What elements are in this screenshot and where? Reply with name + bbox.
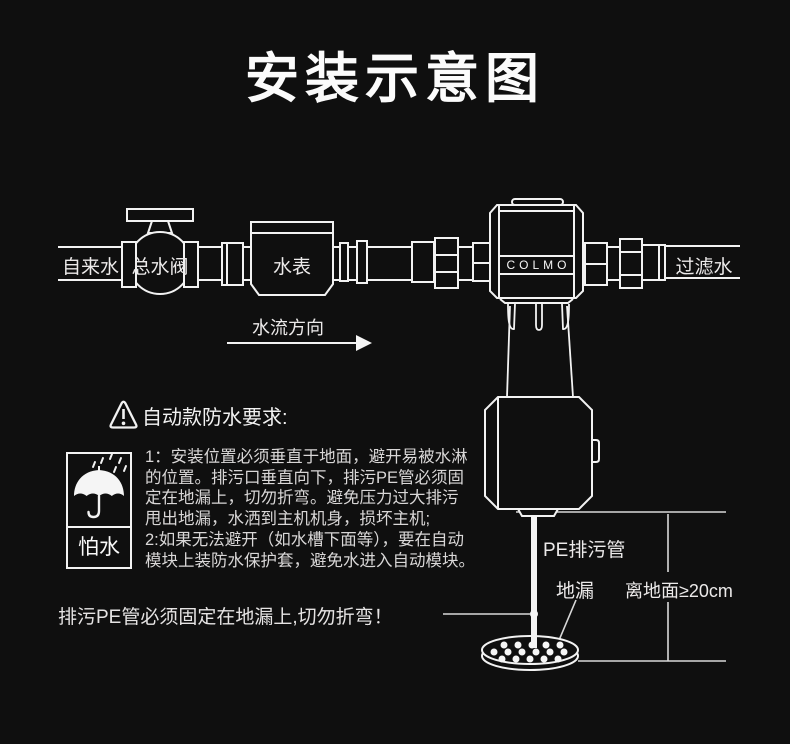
instruction-line: 2:如果无法避开（如水槽下面等），要在自动 xyxy=(145,530,490,551)
instruction-line: 模块上装防水保护套，避免水进入自动模块。 xyxy=(145,551,490,572)
pipe-coupling xyxy=(222,243,243,285)
device-brand-label: COLMO xyxy=(499,257,574,274)
waterproof-instructions: 1：安装位置必须垂直于地面，避开易被水淋 的位置。排污口垂直向下，排污PE管必须… xyxy=(145,447,490,571)
instruction-line: 1：安装位置必须垂直于地面，避开易被水淋 xyxy=(145,447,490,468)
main-valve-label: 总水阀 xyxy=(126,252,194,279)
pe-drain-pipe xyxy=(531,516,537,648)
installation-diagram: 安装示意图 自来水 总水阀 水表 COLMO 过滤水 水流方向 自动款防水要求:… xyxy=(0,0,790,744)
warning-triangle-icon xyxy=(111,402,137,428)
page-title: 安装示意图 xyxy=(245,34,545,113)
pipe-junction-dot xyxy=(530,610,538,618)
pipe-fittings-right xyxy=(585,239,665,288)
filter-bowl xyxy=(507,304,573,397)
tap-water-label: 自来水 xyxy=(58,252,123,279)
floor-drain-label: 地漏 xyxy=(556,576,594,603)
instruction-line: 定在地漏上，切勿折弯。避免压力过大排污 xyxy=(145,488,490,509)
ground-clearance-label: 离地面≥20cm xyxy=(625,577,733,603)
water-meter-label: 水表 xyxy=(251,252,333,279)
flow-direction-label: 水流方向 xyxy=(230,314,346,340)
drain-fix-note: 排污PE管必须固定在地漏上,切勿折弯！ xyxy=(58,602,393,629)
colmo-device-head xyxy=(490,199,583,303)
filtered-water-label: 过滤水 xyxy=(663,252,745,279)
waterproof-heading: 自动款防水要求: xyxy=(142,401,288,430)
pe-pipe-label: PE排污管 xyxy=(543,535,625,562)
auto-module xyxy=(485,397,599,516)
afraid-of-water-caption: 怕水 xyxy=(67,527,131,568)
rain-drops xyxy=(93,454,126,472)
instruction-line: 甩出地漏，水洒到主机机身，损坏主机; xyxy=(145,509,490,530)
instruction-line: 的位置。排污口垂直向下，排污PE管必须固 xyxy=(145,468,490,489)
